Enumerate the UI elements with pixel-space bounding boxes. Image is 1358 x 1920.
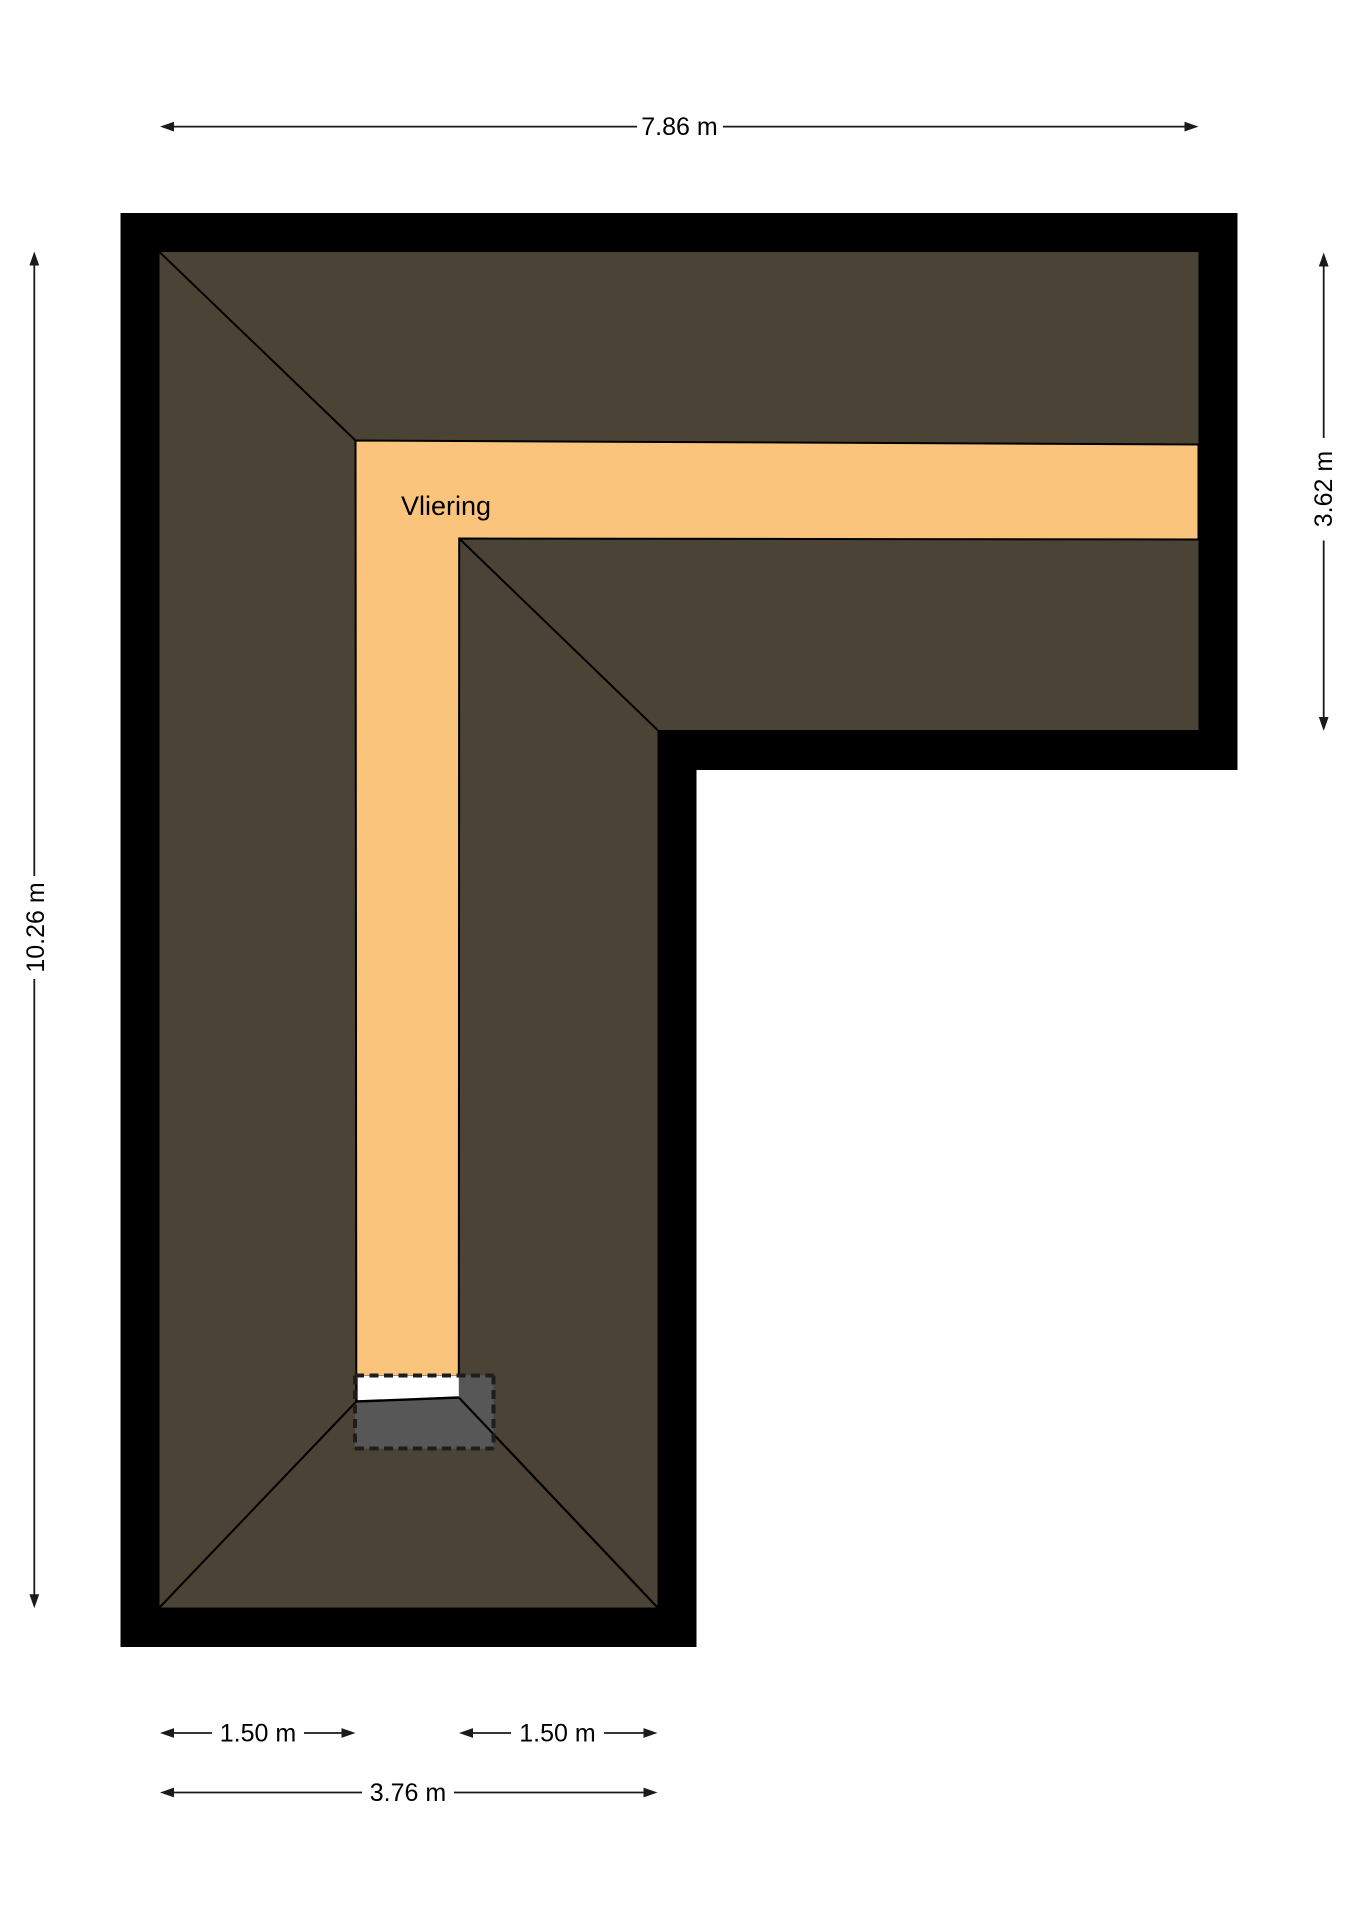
svg-text:1.50 m: 1.50 m [519, 1720, 595, 1748]
svg-text:7.86 m: 7.86 m [641, 113, 717, 141]
svg-text:3.62 m: 3.62 m [1310, 451, 1338, 527]
svg-text:10.26 m: 10.26 m [22, 882, 50, 972]
svg-text:1.50 m: 1.50 m [220, 1720, 296, 1748]
svg-text:3.76 m: 3.76 m [370, 1779, 446, 1807]
svg-text:Vliering: Vliering [401, 491, 491, 521]
